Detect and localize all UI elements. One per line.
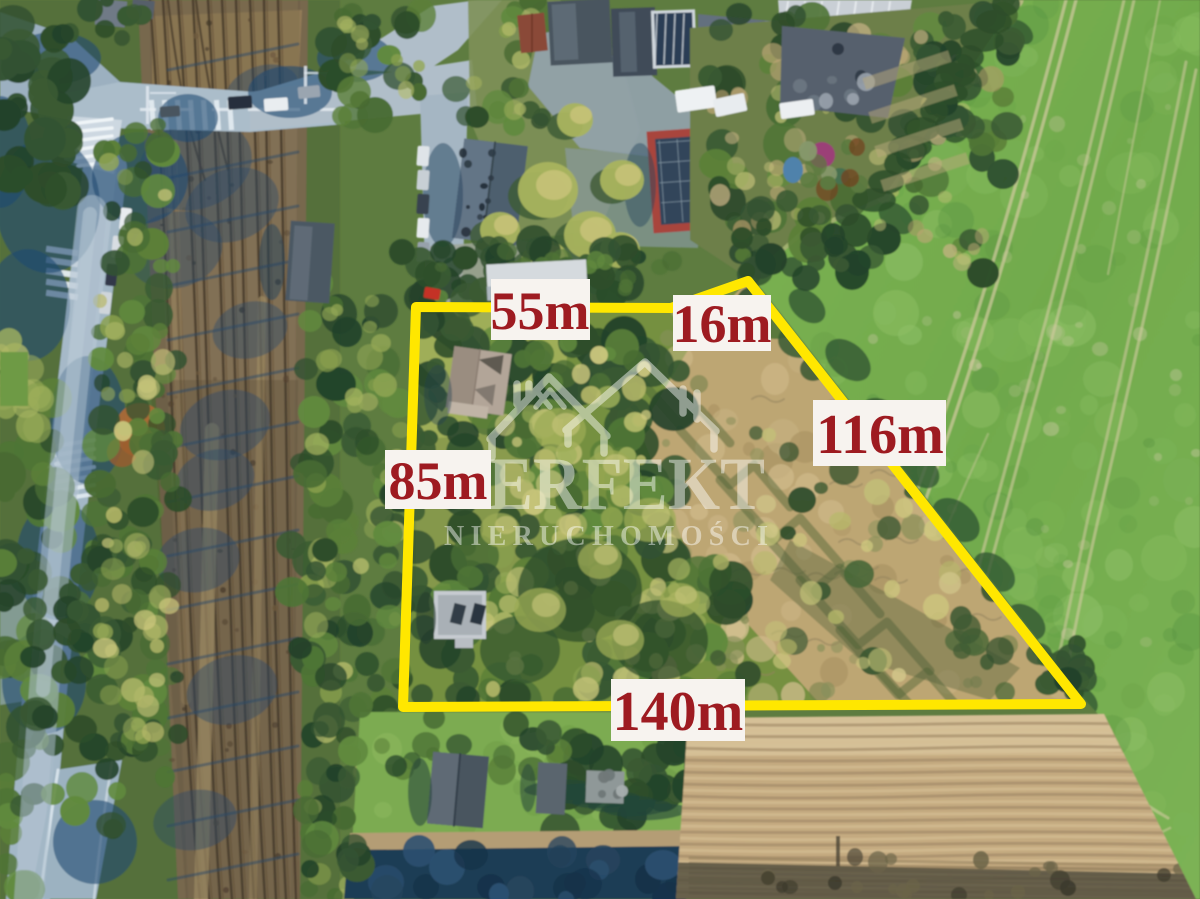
svg-text:NIERUCHOMOŚCI: NIERUCHOMOŚCI [444, 521, 768, 552]
svg-text:PERFEKT: PERFEKT [447, 443, 765, 526]
svg-text:85m: 85m [389, 451, 488, 511]
svg-text:116m: 116m [816, 404, 944, 466]
svg-text:140m: 140m [613, 681, 744, 743]
svg-text:16m: 16m [673, 294, 772, 354]
svg-text:55m: 55m [491, 281, 590, 341]
